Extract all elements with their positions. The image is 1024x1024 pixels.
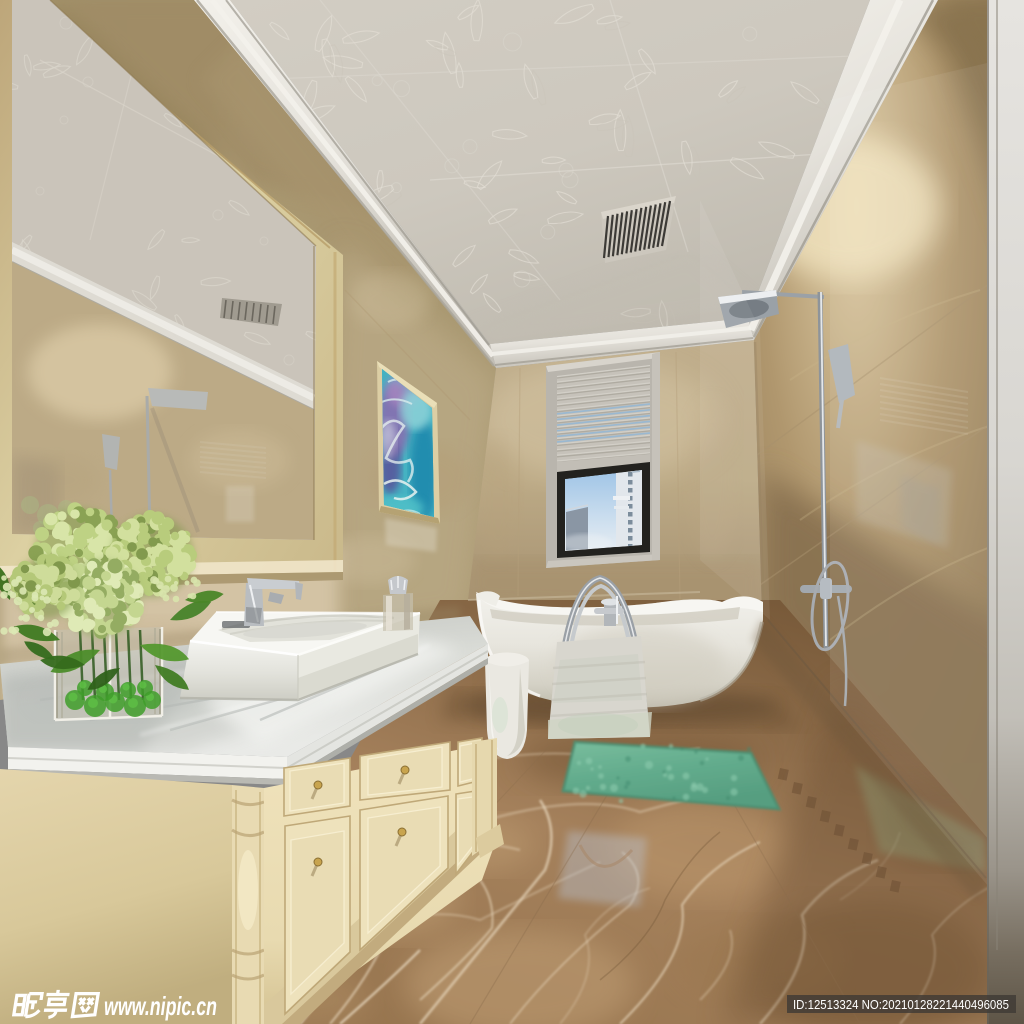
svg-text:ID:12513324 NO:202101282214404: ID:12513324 NO:20210128221440496085 <box>793 998 1009 1012</box>
svg-text:www.nipic.cn: www.nipic.cn <box>104 991 217 1021</box>
